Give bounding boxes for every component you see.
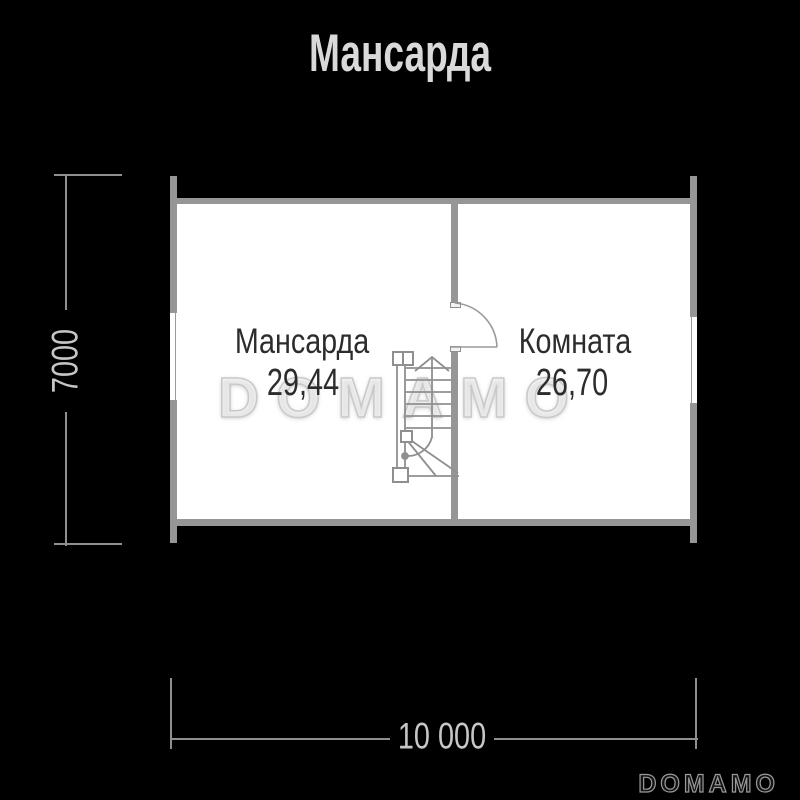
extension-line <box>54 174 122 176</box>
room-name-text: Мансарда <box>235 324 369 359</box>
floor-plan-page: { "title": "Мансарда", "plan": { "rooms"… <box>0 0 800 800</box>
dimension-line-vertical <box>65 176 67 310</box>
stair-newel-post <box>393 352 403 365</box>
floor-title: Мансарда <box>0 27 800 80</box>
partition-wall-upper <box>451 204 458 305</box>
staircase-and-door <box>380 295 510 490</box>
staircase <box>393 352 459 482</box>
stair-newel-post <box>403 352 413 365</box>
window-right <box>690 317 697 403</box>
door-swing-arc <box>455 303 497 347</box>
stair-winder-line <box>406 439 436 476</box>
floor-title-text: Мансарда <box>309 27 491 80</box>
extension-line <box>54 543 122 545</box>
room-area: 26,70 <box>524 364 619 402</box>
room-label: Мансарда <box>220 324 384 359</box>
stair-newel-post <box>401 431 412 442</box>
extension-line <box>170 678 172 749</box>
dimension-line-horizontal <box>171 738 390 740</box>
wall-bottom <box>177 519 690 526</box>
extension-line <box>695 678 697 749</box>
room-label: Комната <box>506 324 643 359</box>
wall-top <box>177 198 690 204</box>
dimension-line-vertical <box>65 412 67 546</box>
window-pane-line <box>175 313 176 400</box>
stair-newel-post <box>393 468 408 482</box>
stair-pivot-dot <box>402 453 408 459</box>
window-left <box>170 313 177 400</box>
dimension-label-horizontal: 10 000 <box>385 718 498 755</box>
window-pane-line <box>691 317 692 403</box>
room-area-text: 26,70 <box>536 364 608 402</box>
dimension-value: 7000 <box>47 329 84 393</box>
room-name-text: Комната <box>519 324 631 359</box>
dimension-line-horizontal <box>494 738 698 740</box>
room-area: 29,44 <box>255 364 350 402</box>
brand-logo: DOMAMO <box>638 772 779 797</box>
room-area-text: 29,44 <box>267 364 339 402</box>
door <box>451 303 497 347</box>
dimension-label-vertical: 7000 <box>47 320 84 402</box>
dimension-value: 10 000 <box>398 718 486 755</box>
